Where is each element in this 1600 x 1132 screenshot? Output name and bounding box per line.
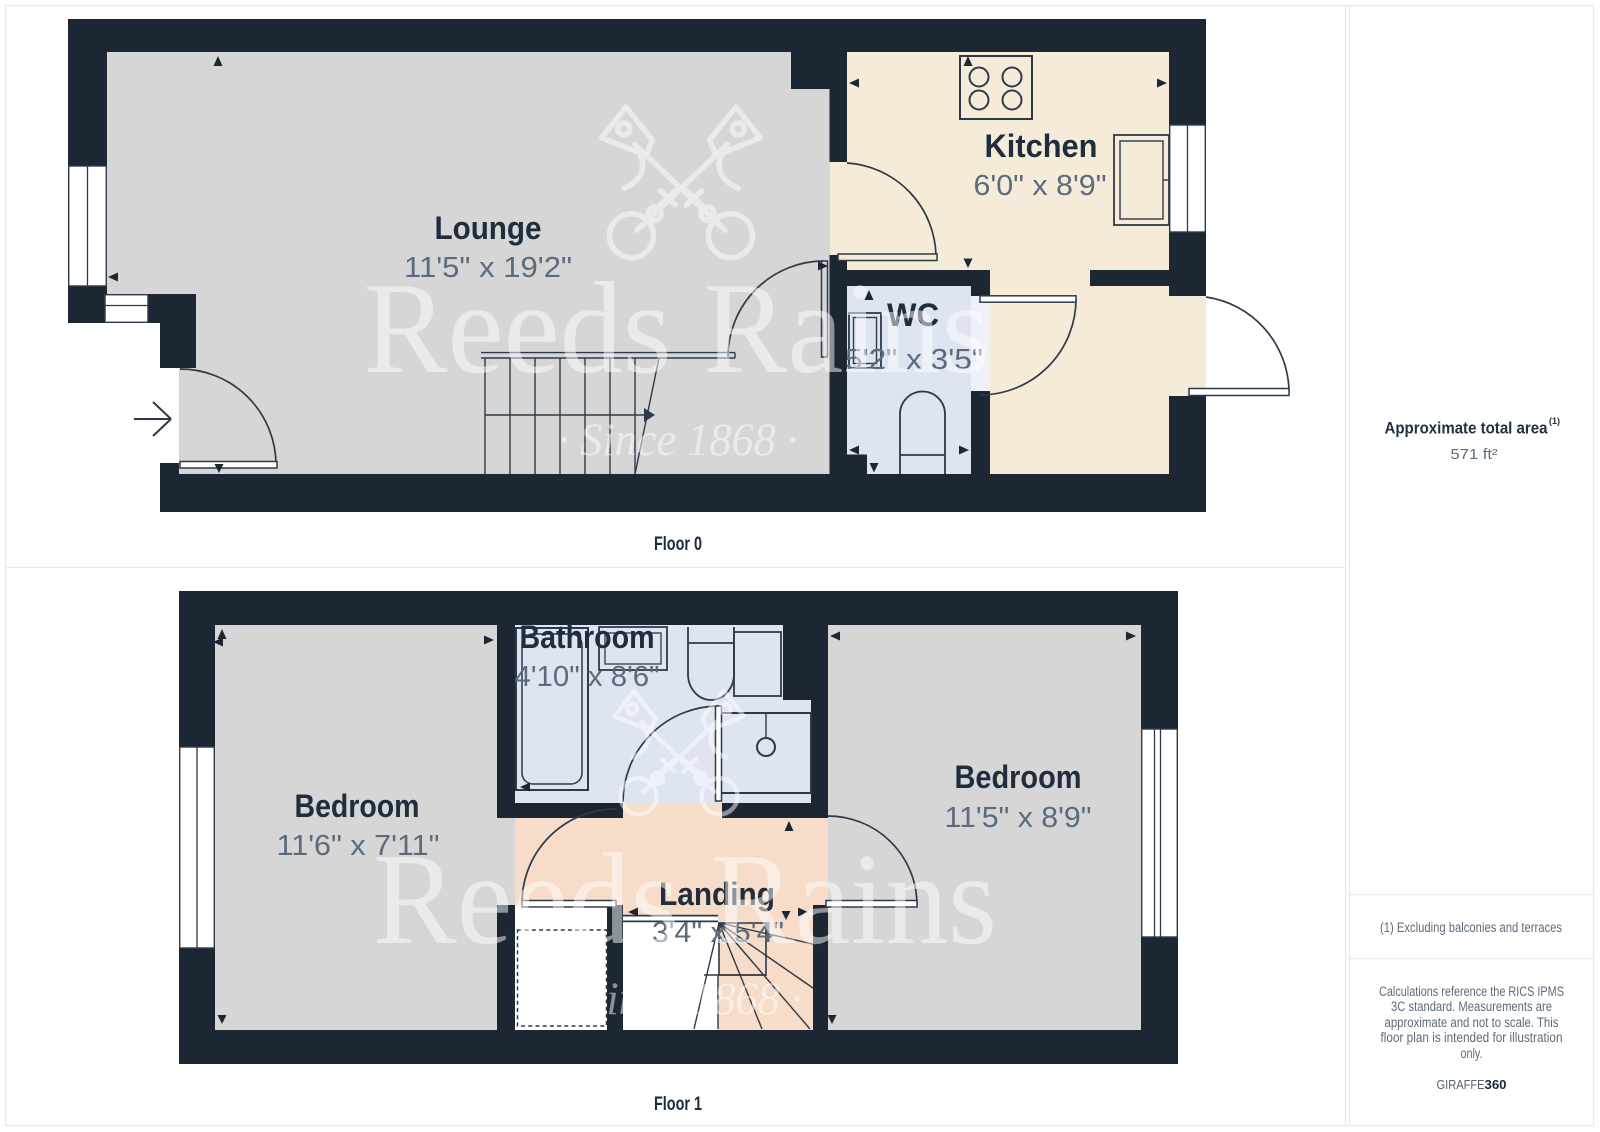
svg-text:Kitchen: Kitchen [985,128,1098,164]
svg-text:3C standard. Measurements are: 3C standard. Measurements are [1391,999,1552,1014]
svg-text:approximate and not to scale.: approximate and not to scale. This [1385,1015,1559,1030]
svg-text:(1) Excluding balconies and te: (1) Excluding balconies and terraces [1380,920,1562,935]
svg-text:4'10" x 8'6": 4'10" x 8'6" [515,661,660,693]
svg-text:6'0" x 8'9": 6'0" x 8'9" [974,170,1107,202]
svg-text:Floor 0: Floor 0 [654,534,702,555]
svg-text:(1): (1) [1549,416,1560,426]
svg-text:Calculations reference the RIC: Calculations reference the RICS IPMS [1379,984,1564,999]
svg-text:Approximate total area: Approximate total area [1385,419,1548,438]
svg-text:Lounge: Lounge [435,210,542,246]
svg-text:Reeds Rains: Reeds Rains [364,256,991,401]
svg-text:· Since 1868 ·: · Since 1868 · [558,414,798,466]
svg-text:floor plan is intended for ill: floor plan is intended for illustration [1381,1030,1563,1045]
svg-text:· Since 1868 ·: · Since 1868 · [562,973,802,1025]
svg-text:571 ft²: 571 ft² [1451,447,1498,463]
svg-text:Floor 1: Floor 1 [654,1094,702,1115]
svg-text:Reeds Rains: Reeds Rains [373,827,997,972]
svg-text:Bedroom: Bedroom [295,788,420,824]
svg-text:Bedroom: Bedroom [955,759,1082,795]
svg-text:Bathroom: Bathroom [520,619,655,655]
svg-text:only.: only. [1461,1046,1483,1061]
svg-text:GIRAFFE360: GIRAFFE360 [1437,1078,1507,1092]
